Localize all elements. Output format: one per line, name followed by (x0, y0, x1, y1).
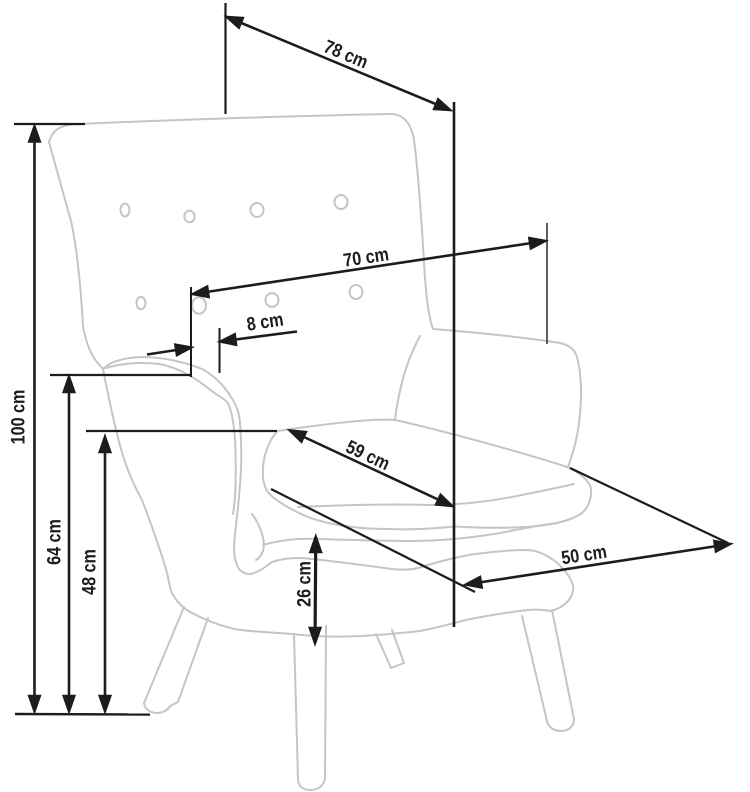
svg-text:8 cm: 8 cm (245, 308, 285, 335)
svg-text:26 cm: 26 cm (293, 561, 315, 607)
svg-text:64 cm: 64 cm (43, 519, 65, 565)
svg-text:48 cm: 48 cm (78, 549, 100, 595)
svg-text:59 cm: 59 cm (343, 436, 394, 475)
svg-text:100 cm: 100 cm (7, 390, 29, 445)
svg-text:70 cm: 70 cm (342, 243, 390, 271)
